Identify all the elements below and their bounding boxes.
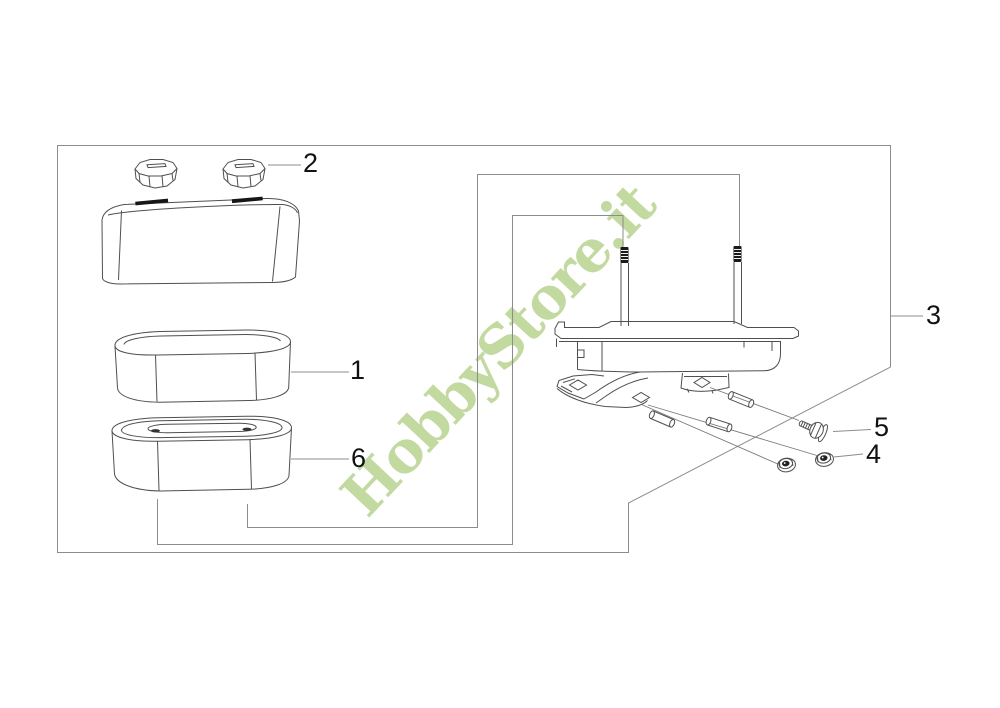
callout-label-2: 2 xyxy=(303,150,318,177)
callout-label-3: 3 xyxy=(926,302,941,329)
knob-slot xyxy=(147,164,166,168)
flange-nut-left xyxy=(777,457,797,473)
leader-callout-4 xyxy=(834,454,863,457)
flange-nut-right xyxy=(815,452,835,468)
flange-nuts-drawing xyxy=(777,452,835,473)
outer-group-box xyxy=(58,146,891,553)
filter-base-assembly-drawing xyxy=(555,246,817,465)
knob-slot xyxy=(235,164,254,168)
cover-keyhole-slot-right xyxy=(232,197,263,204)
parts-diagram-page: HobbyStore.it xyxy=(0,0,1000,708)
assembly-route-line-left xyxy=(158,216,624,545)
leader-callout-5 xyxy=(833,430,871,432)
stud-thread-left xyxy=(621,247,629,263)
filter-stud-hole-left xyxy=(151,429,160,432)
callout-leader-lines xyxy=(268,165,923,459)
base-flange-and-body xyxy=(555,322,799,408)
mounting-studs xyxy=(621,246,742,326)
callout-label-4: 4 xyxy=(866,441,881,468)
cover-keyhole-slot-left xyxy=(135,199,168,206)
callout-label-6: 6 xyxy=(351,445,366,472)
callout-label-5: 5 xyxy=(874,414,889,441)
callout-label-1: 1 xyxy=(350,357,365,384)
filter-stud-hole-right xyxy=(243,428,252,431)
spacer-2 xyxy=(705,417,733,433)
spacer-sleeves xyxy=(648,391,754,433)
knob-left-drawing xyxy=(135,160,177,189)
stud-thread-right xyxy=(734,246,742,262)
bolt-hole-diamond-left xyxy=(570,380,587,390)
filter-element-6-drawing xyxy=(112,416,292,491)
bolt-hole-diamond-right xyxy=(694,378,710,388)
spacer-3 xyxy=(727,391,754,408)
cover-knobs-drawing xyxy=(135,160,265,189)
assembly-route-line-right xyxy=(248,175,740,528)
knob-right-drawing xyxy=(223,160,265,189)
spacer-1 xyxy=(648,410,675,428)
air-filter-cover-drawing xyxy=(102,197,300,284)
flange-bolt-drawing xyxy=(796,414,829,442)
exploded-parts-drawing xyxy=(0,0,1000,708)
filter-element-1-drawing xyxy=(115,330,291,402)
group-boundary-box xyxy=(58,146,891,553)
